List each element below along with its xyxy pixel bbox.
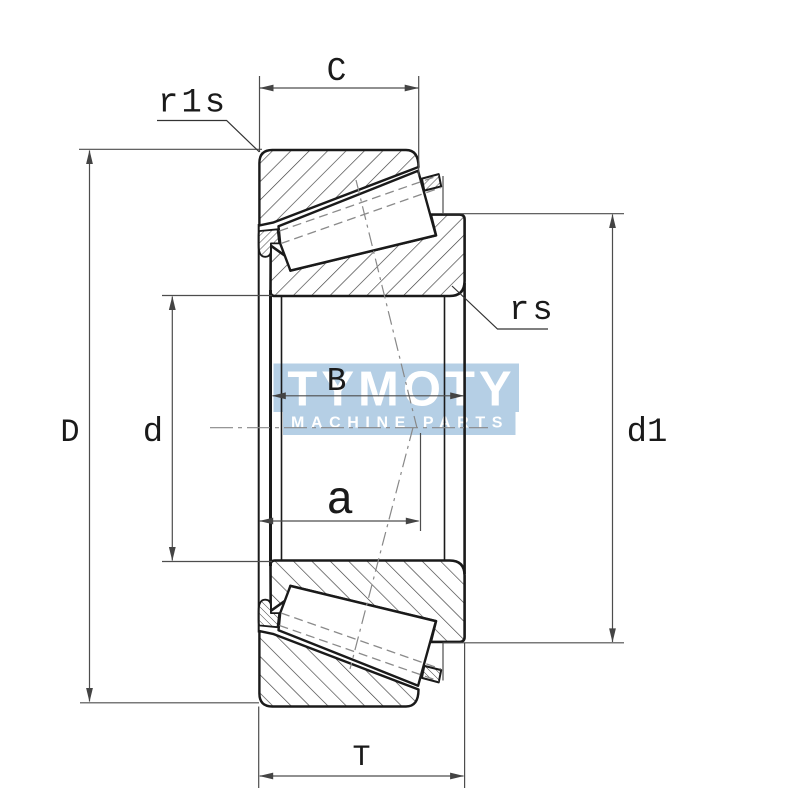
svg-text:a: a (326, 475, 354, 527)
svg-text:TYMOTY: TYMOTY (287, 363, 515, 417)
svg-text:MACHINE PARTS: MACHINE PARTS (291, 415, 509, 432)
svg-text:B: B (327, 363, 347, 400)
svg-text:d1: d1 (627, 414, 668, 452)
svg-text:d: d (143, 414, 163, 452)
svg-text:D: D (60, 414, 79, 451)
svg-text:r1s: r1s (158, 85, 228, 123)
svg-text:C: C (327, 53, 347, 90)
svg-text:rs: rs (509, 292, 556, 330)
svg-text:T: T (352, 741, 370, 775)
